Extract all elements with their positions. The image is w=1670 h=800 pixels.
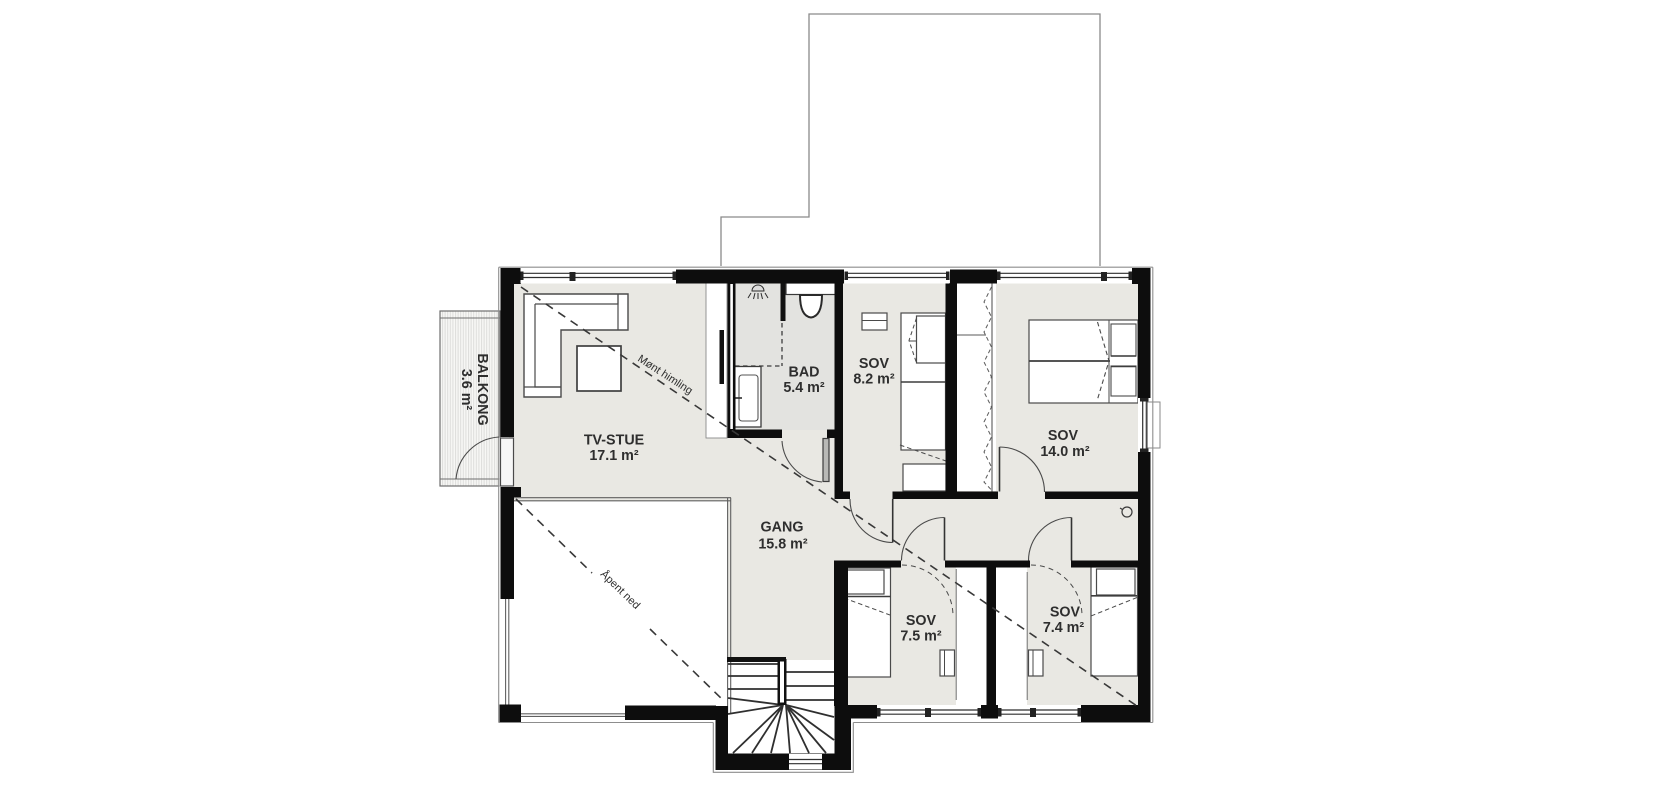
svg-text:SOV: SOV bbox=[1048, 428, 1079, 444]
svg-text:8.2 m²: 8.2 m² bbox=[853, 372, 895, 388]
svg-text:SOV: SOV bbox=[859, 356, 890, 372]
svg-text:14.0 m²: 14.0 m² bbox=[1040, 444, 1090, 460]
svg-text:17.1 m²: 17.1 m² bbox=[589, 448, 639, 464]
svg-text:TV-STUE: TV-STUE bbox=[584, 433, 644, 449]
svg-text:7.4 m²: 7.4 m² bbox=[1043, 620, 1085, 636]
svg-text:GANG: GANG bbox=[761, 520, 804, 536]
svg-text:15.8 m²: 15.8 m² bbox=[758, 537, 808, 553]
svg-text:BAD: BAD bbox=[789, 365, 820, 381]
svg-text:5.4 m²: 5.4 m² bbox=[783, 380, 825, 396]
svg-text:7.5 m²: 7.5 m² bbox=[900, 629, 942, 645]
svg-text:SOV: SOV bbox=[906, 613, 937, 629]
svg-text:SOV: SOV bbox=[1050, 605, 1081, 621]
